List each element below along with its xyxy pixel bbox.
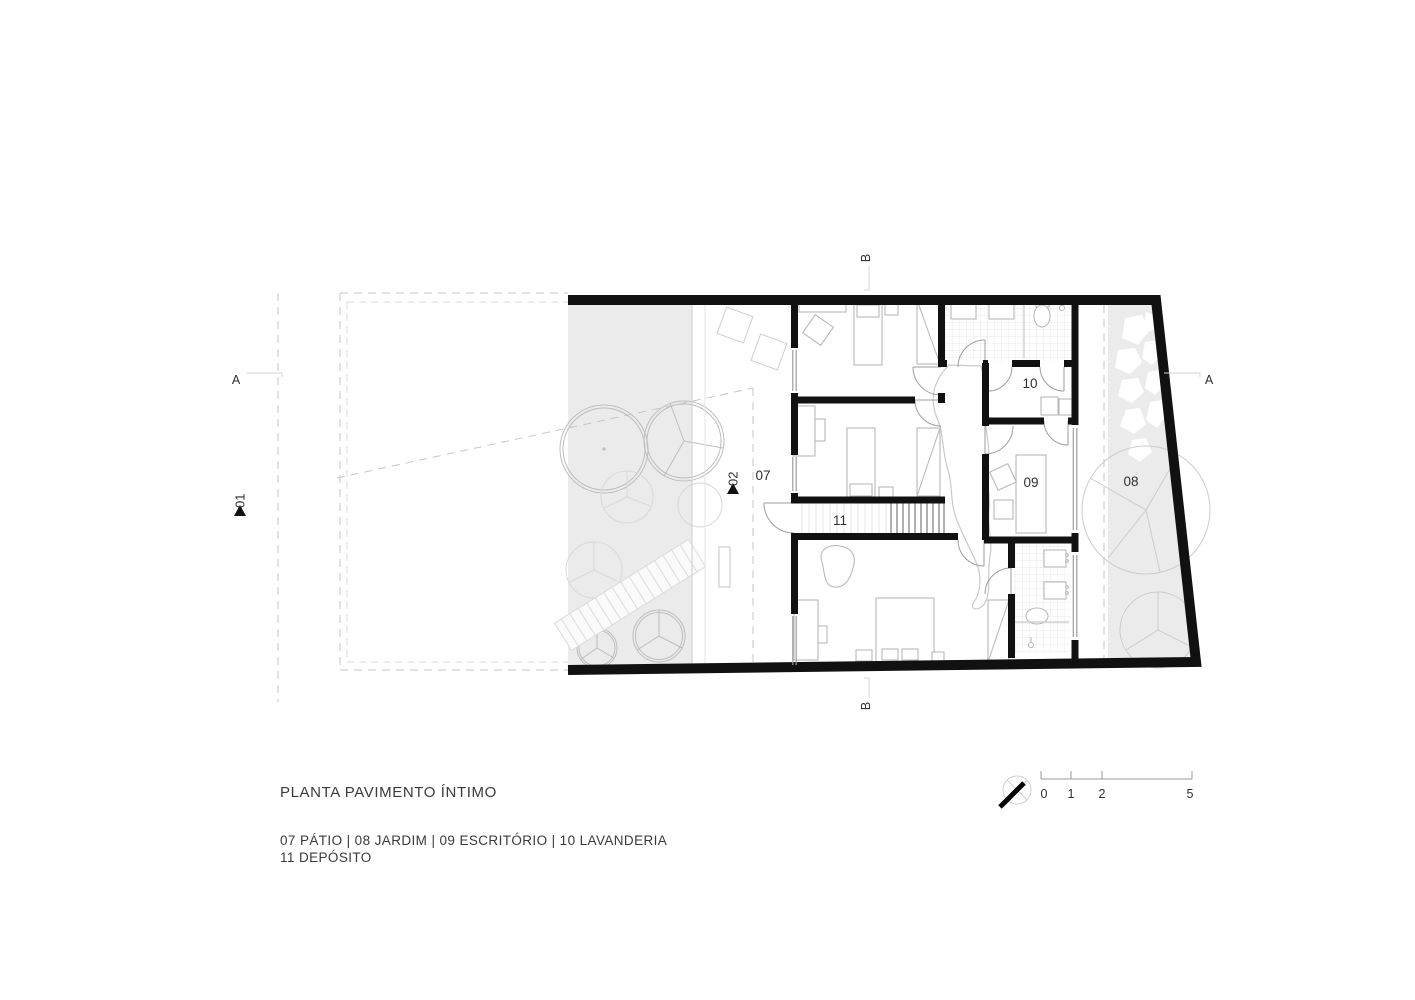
scale-tick-2: 2 — [1099, 787, 1106, 801]
marker-a-right: A — [1205, 373, 1214, 387]
legend: 07 PÁTIO | 08 JARDIM | 09 ESCRITÓRIO | 1… — [280, 832, 667, 866]
label-jardim: 08 — [1123, 474, 1138, 489]
level-marker-02: 02 — [726, 472, 741, 494]
floor-plan-drawing: 07 08 09 10 11 A A B B 01 02 — [0, 0, 1415, 1000]
floor-plan-sheet: 07 08 09 10 11 A A B B 01 02 — [0, 0, 1415, 1000]
level-marker-01: 01 — [233, 494, 248, 516]
label-patio: 07 — [755, 468, 770, 483]
north-arrow-icon — [1000, 776, 1031, 807]
legend-line-1: 07 PÁTIO | 08 JARDIM | 09 ESCRITÓRIO | 1… — [280, 832, 667, 849]
svg-text:02: 02 — [726, 472, 741, 486]
stairs — [891, 503, 944, 536]
scale-bar: 0 1 2 5 — [1041, 771, 1194, 801]
legend-line-2: 11 DEPÓSITO — [280, 849, 667, 866]
label-escritorio: 09 — [1023, 475, 1038, 490]
page-title: PLANTA PAVIMENTO ÍNTIMO — [280, 784, 497, 801]
scale-tick-0: 0 — [1041, 787, 1048, 801]
property-boundary-inner-dashed — [347, 302, 568, 662]
scale-tick-5: 5 — [1187, 787, 1194, 801]
label-lavanderia: 10 — [1022, 376, 1037, 391]
scale-tick-1: 1 — [1068, 787, 1075, 801]
svg-text:01: 01 — [233, 494, 248, 508]
marker-a-left: A — [232, 373, 241, 387]
label-deposito: 11 — [833, 513, 847, 528]
marker-b-top: B — [859, 254, 873, 262]
marker-b-bottom: B — [859, 702, 873, 710]
